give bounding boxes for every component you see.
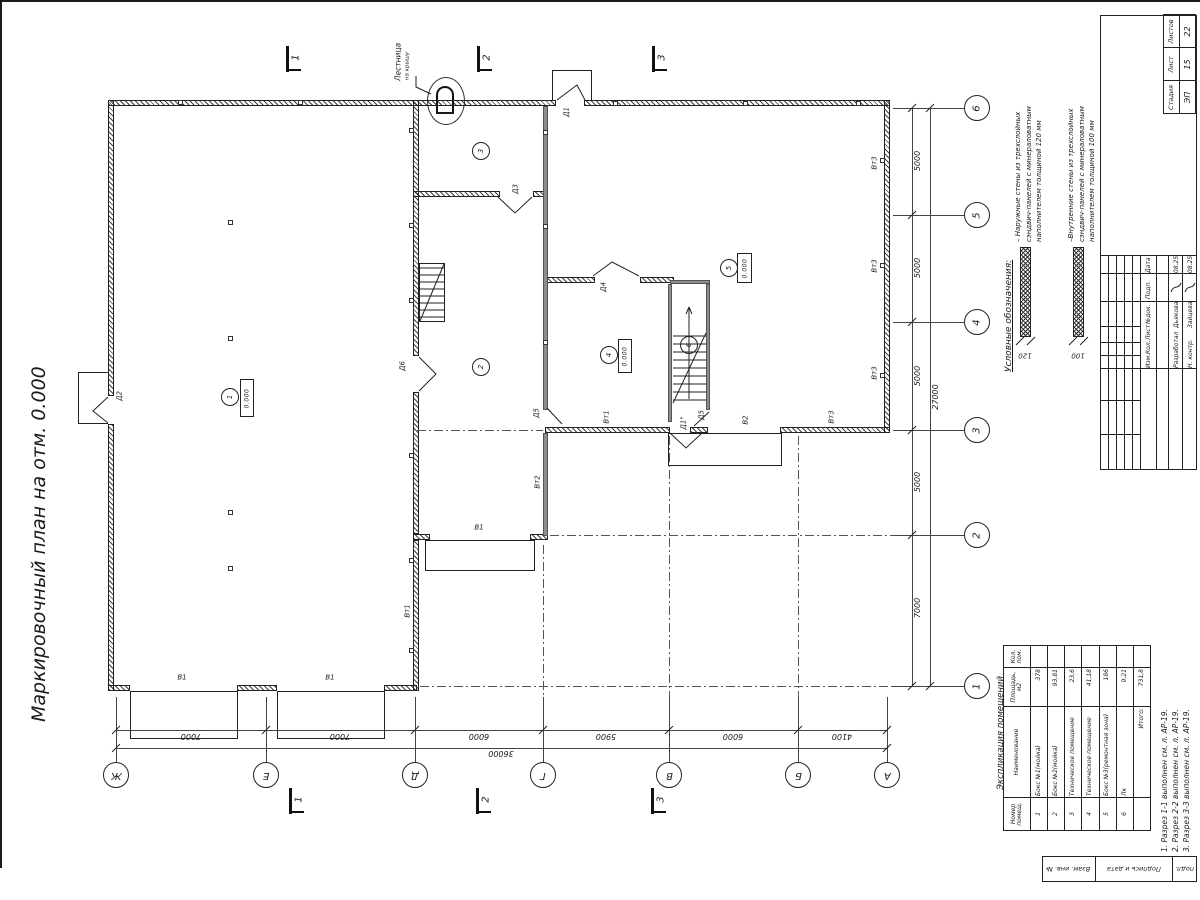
plan-line <box>908 211 916 219</box>
plan-line <box>557 85 585 100</box>
fastener-square <box>613 101 618 106</box>
plan-line <box>908 318 916 326</box>
fastener-square <box>298 100 303 105</box>
plan-line <box>262 726 270 734</box>
plan-line <box>416 76 431 94</box>
plan-line <box>93 397 108 423</box>
plan-line <box>926 104 934 112</box>
fastener-square <box>409 298 414 303</box>
fastener-square <box>228 220 233 225</box>
plan-lines-svg <box>0 0 1200 900</box>
plan-line <box>908 104 916 112</box>
fastener-square <box>228 510 233 515</box>
plan-line <box>908 531 916 539</box>
fastener-square <box>409 453 414 458</box>
drawing-sheet: Маркировочный план на отм. 0.000 Лестниц… <box>0 0 1200 900</box>
plan-line <box>411 726 419 734</box>
fastener-square <box>880 263 885 268</box>
plan-line <box>908 426 916 434</box>
plan-line <box>593 262 639 276</box>
plan-line <box>539 726 547 734</box>
plan-line <box>1016 337 1088 345</box>
plan-line <box>908 682 916 690</box>
fastener-square <box>543 224 548 229</box>
plan-line <box>1185 283 1195 292</box>
plan-line <box>686 307 692 399</box>
fastener-square <box>409 128 414 133</box>
fastener-square <box>228 566 233 571</box>
plan-line <box>112 744 120 752</box>
plan-line <box>420 264 444 321</box>
plan-line <box>112 726 120 734</box>
plan-line <box>547 408 562 424</box>
fastener-square <box>409 558 414 563</box>
plan-line <box>670 433 702 448</box>
fastener-square <box>880 373 885 378</box>
plan-line <box>419 357 436 391</box>
plan-line <box>1171 283 1181 292</box>
fastener-square <box>856 101 861 106</box>
fastener-square <box>543 340 548 345</box>
plan-line <box>883 744 891 752</box>
plan-line <box>794 726 802 734</box>
fastener-square <box>228 336 233 341</box>
fastener-square <box>409 223 414 228</box>
fastener-square <box>543 130 548 135</box>
fastener-square <box>409 648 414 653</box>
plan-line <box>926 682 934 690</box>
fastener-square <box>178 100 183 105</box>
plan-line <box>498 197 532 213</box>
plan-line <box>665 726 673 734</box>
fastener-square <box>743 101 748 106</box>
plan-line <box>883 726 891 734</box>
plan-line <box>694 412 709 426</box>
fastener-square <box>880 158 885 163</box>
